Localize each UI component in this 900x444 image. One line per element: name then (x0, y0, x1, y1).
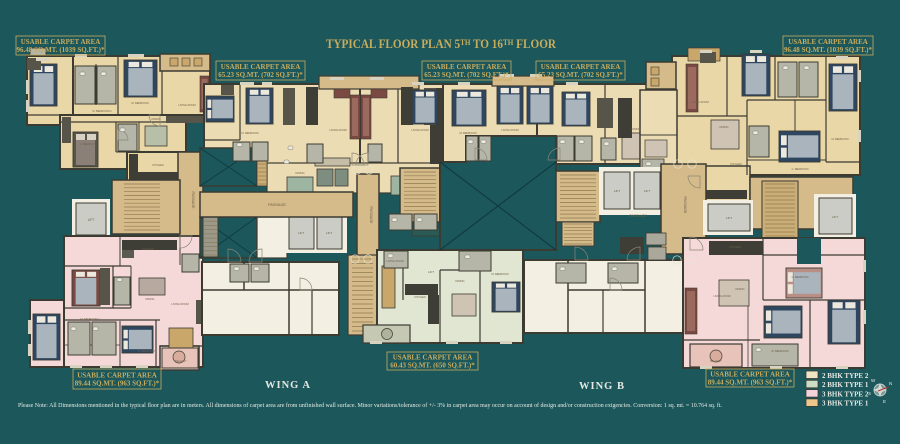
svg-text:M. BEDROOM: M. BEDROOM (131, 101, 148, 105)
svg-text:PASSAGE: PASSAGE (191, 192, 195, 210)
svg-text:PASSAGE: PASSAGE (268, 203, 286, 207)
svg-text:M. BEDROOM: M. BEDROOM (831, 137, 848, 141)
svg-text:65.23 SQ.MT. (702 SQ.FT.)*: 65.23 SQ.MT. (702 SQ.FT.)* (538, 71, 623, 79)
svg-text:M. BEDROOM: M. BEDROOM (771, 349, 788, 353)
svg-text:LIVING ROOM: LIVING ROOM (691, 100, 708, 104)
svg-text:89.44 SQ.MT. (963 SQ.FT.)*: 89.44 SQ.MT. (963 SQ.FT.)* (75, 380, 160, 388)
svg-text:KITCHEN: KITCHEN (730, 162, 742, 166)
svg-text:LIVING ROOM: LIVING ROOM (713, 294, 730, 298)
svg-text:LIFT: LIFT (88, 218, 95, 222)
svg-text:2 BHK TYPE 2: 2 BHK TYPE 2 (822, 372, 869, 380)
svg-text:C. BEDROOM: C. BEDROOM (80, 142, 97, 146)
svg-text:KITCHEN: KITCHEN (729, 245, 741, 249)
svg-text:M. BEDROOM 2: M. BEDROOM 2 (80, 317, 100, 321)
svg-text:USABLE CARPET AREA: USABLE CARPET AREA (221, 63, 301, 71)
svg-text:96.48 SQ.MT. (1039 SQ.FT.)*: 96.48 SQ.MT. (1039 SQ.FT.)* (784, 46, 873, 54)
svg-text:PASSAGE: PASSAGE (369, 207, 373, 225)
svg-text:TYPICAL FLOOR PLAN 5TH TO 16TH: TYPICAL FLOOR PLAN 5TH TO 16TH FLOOR (326, 37, 557, 51)
svg-text:DINING: DINING (719, 125, 728, 129)
svg-text:LIFT: LIFT (428, 270, 434, 274)
svg-text:60.43 SQ.MT. (650 SQ.FT.)*: 60.43 SQ.MT. (650 SQ.FT.)* (390, 362, 475, 370)
svg-text:LIFT: LIFT (644, 189, 650, 193)
svg-text:96.48 SQ.MT. (1039 SQ.FT.)*: 96.48 SQ.MT. (1039 SQ.FT.)* (16, 46, 105, 54)
svg-text:USABLE CARPET AREA: USABLE CARPET AREA (788, 38, 868, 46)
svg-text:LIVING ROOM: LIVING ROOM (178, 103, 195, 107)
svg-text:WING B: WING B (579, 381, 625, 392)
svg-text:USABLE CARPET AREA: USABLE CARPET AREA (393, 354, 473, 362)
svg-text:LIVING ROOM: LIVING ROOM (501, 128, 518, 132)
svg-text:LIVING ROOM: LIVING ROOM (329, 128, 346, 132)
svg-text:KITCHEN: KITCHEN (414, 295, 426, 299)
svg-text:LIFT: LIFT (614, 189, 620, 193)
svg-text:S: S (868, 391, 871, 396)
svg-text:DINING: DINING (455, 279, 464, 283)
svg-text:USABLE CARPET AREA: USABLE CARPET AREA (77, 372, 157, 380)
svg-text:DINING: DINING (145, 297, 154, 301)
svg-text:65.23 SQ.MT. (702 SQ.FT.)*: 65.23 SQ.MT. (702 SQ.FT.)* (218, 71, 303, 79)
svg-text:M. BEDROOM: M. BEDROOM (491, 272, 508, 276)
svg-text:M. BEDROOM 2: M. BEDROOM 2 (92, 109, 112, 113)
svg-text:LIVING ROOM: LIVING ROOM (386, 259, 403, 263)
svg-text:LIVING ROOM: LIVING ROOM (171, 302, 188, 306)
svg-text:Please Note: All Dimensions me: Please Note: All Dimensions mentioned in… (18, 402, 722, 409)
svg-text:DINING: DINING (631, 127, 640, 131)
svg-text:89.44 SQ.MT. (963 SQ.FT.)*: 89.44 SQ.MT. (963 SQ.FT.)* (708, 379, 793, 387)
svg-text:USABLE CARPET AREA: USABLE CARPET AREA (541, 63, 621, 71)
svg-text:LIVING ROOM: LIVING ROOM (411, 128, 428, 132)
svg-text:USABLE CARPET AREA: USABLE CARPET AREA (710, 371, 790, 379)
svg-text:G. BEDROOM: G. BEDROOM (792, 275, 809, 279)
svg-text:LIFT: LIFT (832, 215, 838, 219)
svg-text:DINING: DINING (295, 171, 304, 175)
svg-text:3 BHK TYPE 2: 3 BHK TYPE 2 (822, 390, 869, 398)
svg-text:KITCHEN: KITCHEN (142, 247, 154, 251)
svg-text:LIFT: LIFT (326, 231, 332, 235)
svg-text:M. BEDROOM: M. BEDROOM (241, 131, 258, 135)
svg-text:E: E (883, 399, 886, 404)
svg-text:PASSAGE: PASSAGE (683, 197, 687, 215)
svg-text:2 BHK TYPE 1: 2 BHK TYPE 1 (822, 381, 869, 389)
svg-text:LIFT: LIFT (726, 216, 732, 220)
svg-text:PASSAGE: PASSAGE (629, 214, 647, 218)
svg-text:USABLE CARPET AREA: USABLE CARPET AREA (427, 63, 507, 71)
svg-text:BALCONY: BALCONY (710, 360, 722, 363)
svg-text:WING A: WING A (265, 380, 311, 391)
svg-text:C. BEDROOM: C. BEDROOM (792, 167, 809, 171)
svg-text:DINING: DINING (735, 287, 744, 291)
svg-text:BALCONY: BALCONY (175, 360, 187, 363)
svg-text:LIFT: LIFT (298, 231, 304, 235)
svg-text:DINING: DINING (151, 117, 160, 121)
svg-text:N: N (889, 381, 892, 386)
svg-text:65.23 SQ.MT. (702 SQ.FT.)*: 65.23 SQ.MT. (702 SQ.FT.)* (424, 71, 509, 79)
svg-text:USABLE CARPET AREA: USABLE CARPET AREA (21, 38, 101, 46)
svg-text:M. BEDROOM: M. BEDROOM (137, 349, 154, 353)
svg-text:3 BHK TYPE 1: 3 BHK TYPE 1 (822, 400, 869, 408)
svg-text:KITCHEN: KITCHEN (152, 163, 164, 167)
svg-text:M. BEDROOM: M. BEDROOM (459, 131, 476, 135)
